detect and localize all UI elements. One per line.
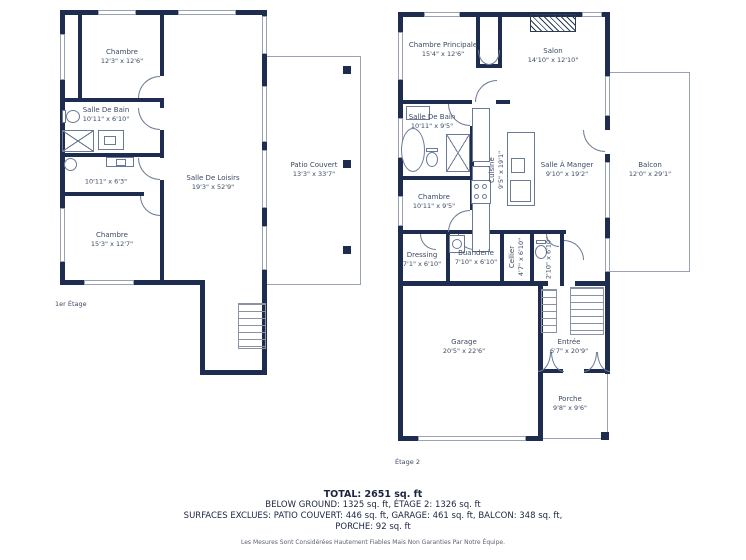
room-dims: 19'3" x 52'9" (186, 183, 239, 192)
room-name: Cuisine (488, 151, 497, 189)
wall (200, 280, 205, 375)
room-label-entree: Entrée 6'7" x 20'9" (550, 338, 588, 356)
wall (530, 234, 534, 281)
bathtub-icon (401, 128, 425, 172)
window (178, 10, 236, 15)
window (262, 226, 267, 270)
room-dims: 10'11" x 6'3" (85, 178, 127, 187)
floor1-label: 1er Étage (55, 300, 87, 308)
room-dims: 7'10" x 6'10" (455, 258, 497, 267)
door-opening (605, 130, 610, 154)
balcony-door-arc (583, 130, 605, 152)
room-name: Chambre (91, 231, 133, 240)
room-label-balcon: Balcon 12'0" x 29'1" (629, 161, 671, 179)
patio-post (343, 66, 351, 74)
room-label-wc: 2'10" x 6'10" (545, 237, 554, 279)
door-arc (448, 210, 470, 232)
window (398, 32, 403, 80)
fireplace-hatch (530, 14, 576, 32)
shower-icon (62, 130, 94, 152)
stove-burner (474, 194, 479, 199)
shower-icon (446, 134, 470, 172)
window (398, 196, 403, 226)
door-arc (420, 234, 436, 250)
room-label-porche: Porche 9'8" x 9'6" (553, 395, 587, 413)
door-arc (138, 76, 160, 98)
room-label-salon: Salon 14'10" x 12'10" (528, 47, 579, 65)
patio-boundary (267, 284, 361, 285)
room-dims: 12'3" x 12'6" (101, 57, 143, 66)
toilet-icon (426, 152, 438, 167)
room-name: Porche (553, 395, 587, 404)
sink-icon (116, 159, 126, 166)
room-name: Chambre (413, 193, 455, 202)
room-name: Cellier (508, 238, 517, 276)
room-name: Salle De Loisirs (186, 174, 239, 183)
balcony-boundary (689, 72, 690, 272)
window (60, 208, 65, 262)
room-dims: 10'11" x 6'10" (83, 115, 130, 124)
room-dims: 20'5" x 22'6" (443, 347, 485, 356)
porch-boundary (607, 374, 608, 439)
room-dims: 15'4" x 12'6" (409, 50, 477, 59)
window (60, 34, 65, 80)
room-label-salle-de-bain: Salle De Bain 10'11" x 9'5" (409, 113, 456, 131)
room-dims: 2'10" x 6'10" (545, 237, 554, 279)
wall (160, 130, 164, 158)
wall (398, 281, 403, 441)
room-dims: 10'11" x 9'5" (409, 122, 456, 131)
porch-boundary (543, 438, 608, 439)
wall (398, 281, 548, 286)
room-name: Salon (528, 47, 579, 56)
door-arc (138, 158, 160, 180)
room-dims: 9'10" x 19'2" (541, 170, 594, 179)
wall (160, 10, 164, 76)
island-appliance (510, 180, 531, 202)
room-label-dressing: Dressing 7'1" x 6'10" (403, 251, 441, 269)
floor2-label: Étage 2 (395, 458, 420, 466)
room-dims: 4'7" x 6'10" (517, 238, 526, 276)
window (605, 238, 610, 272)
summary-line-porch: PORCHE: 92 sq. ft (0, 522, 746, 533)
balcony-boundary (610, 72, 690, 73)
window (424, 12, 460, 17)
stairs (238, 303, 266, 349)
window (605, 162, 610, 218)
room-label-chambre: Chambre 10'11" x 9'5" (413, 193, 455, 211)
room-dims: 15'3" x 12'7" (91, 240, 133, 249)
room-name: Garage (443, 338, 485, 347)
disclaimer-text: Les Mesures Sont Considérées Hautement F… (0, 539, 746, 546)
window (262, 150, 267, 208)
room-name: Entrée (550, 338, 588, 347)
sink-icon (511, 158, 525, 173)
summary-line-excluded-surfaces: SURFACES EXCLUES: PATIO COUVERT: 446 sq.… (0, 511, 746, 522)
stove-burner (474, 184, 479, 189)
window (582, 12, 602, 17)
door-arc (564, 240, 584, 260)
room-label-chambre2: Chambre 15'3" x 12'7" (91, 231, 133, 249)
summary-total: TOTAL: 2651 sq. ft (0, 489, 746, 500)
room-dims: 9'8" x 9'6" (553, 404, 587, 413)
stairs (541, 289, 557, 333)
sink-icon (64, 158, 77, 171)
room-name: Balcon (629, 161, 671, 170)
floor-plan-page: Chambre 12'3" x 12'6" Salle De Bain 10'1… (0, 0, 746, 560)
window (605, 76, 610, 116)
washer-icon (452, 239, 462, 249)
room-label-buanderie: Buanderie 7'10" x 6'10" (455, 249, 497, 267)
stove-burner (482, 194, 487, 199)
room-name: Dressing (403, 251, 441, 260)
door-arc (140, 196, 160, 216)
garage-door (418, 436, 526, 441)
patio-post (343, 246, 351, 254)
room-label-cellier: Cellier 4'7" x 6'10" (508, 238, 526, 276)
area-summary: TOTAL: 2651 sq. ft BELOW GROUND: 1325 sq… (0, 489, 746, 546)
door-arc (138, 108, 160, 130)
wall (200, 370, 267, 375)
room-label-patio-couvert: Patio Couvert 13'3" x 33'7" (290, 161, 337, 179)
room-name: Salle De Bain (409, 113, 456, 122)
room-name: Patio Couvert (290, 161, 337, 170)
wall (60, 192, 144, 196)
room-label-chambre-principale: Chambre Principale 15'4" x 12'6" (409, 41, 477, 59)
room-label-cuisine: Cuisine 9'5" x 19'1" (488, 151, 506, 189)
stove-burner (482, 184, 487, 189)
balcony-boundary (610, 271, 690, 272)
window (84, 280, 134, 285)
patio-boundary (360, 56, 361, 285)
window (262, 16, 267, 54)
porch-post (601, 432, 609, 440)
room-dims: 9'5" x 19'1" (497, 151, 506, 189)
room-label-chambre: Chambre 12'3" x 12'6" (101, 48, 143, 66)
wall (496, 100, 510, 104)
patio-boundary (267, 56, 361, 57)
room-name: Salle De Bain (83, 106, 130, 115)
room-dims: 7'1" x 6'10" (403, 260, 441, 269)
room-dims: 13'3" x 33'7" (290, 170, 337, 179)
room-label-garage: Garage 20'5" x 22'6" (443, 338, 485, 356)
room-label-salle-de-bain: Salle De Bain 10'11" x 6'10" (83, 106, 130, 124)
patio-post (343, 160, 351, 168)
wall (160, 180, 164, 285)
wall (398, 176, 474, 180)
room-label-salle-de-loisirs: Salle De Loisirs 19'3" x 52'9" (186, 174, 239, 192)
window (262, 86, 267, 142)
room-name: Buanderie (455, 249, 497, 258)
wall (498, 12, 502, 68)
room-dims: 10'11" x 9'5" (413, 202, 455, 211)
wall (160, 98, 164, 108)
stairs (570, 287, 604, 335)
wall (500, 234, 504, 281)
sink-icon (104, 136, 116, 145)
room-name: Chambre (101, 48, 143, 57)
window (98, 10, 136, 15)
room-label-salle-eau: 10'11" x 6'3" (85, 178, 127, 187)
summary-line-below-ground: BELOW GROUND: 1325 sq. ft, ÉTAGE 2: 1326… (0, 500, 746, 511)
door-arc (475, 80, 497, 102)
wall (60, 98, 164, 102)
room-dims: 12'0" x 29'1" (629, 170, 671, 179)
room-name: Chambre Principale (409, 41, 477, 50)
room-label-salle-a-manger: Salle À Manger 9'10" x 19'2" (541, 161, 594, 179)
room-dims: 6'7" x 20'9" (550, 347, 588, 356)
toilet-icon (66, 110, 80, 123)
wall (78, 12, 82, 98)
room-name: Salle À Manger (541, 161, 594, 170)
room-dims: 14'10" x 12'10" (528, 56, 579, 65)
